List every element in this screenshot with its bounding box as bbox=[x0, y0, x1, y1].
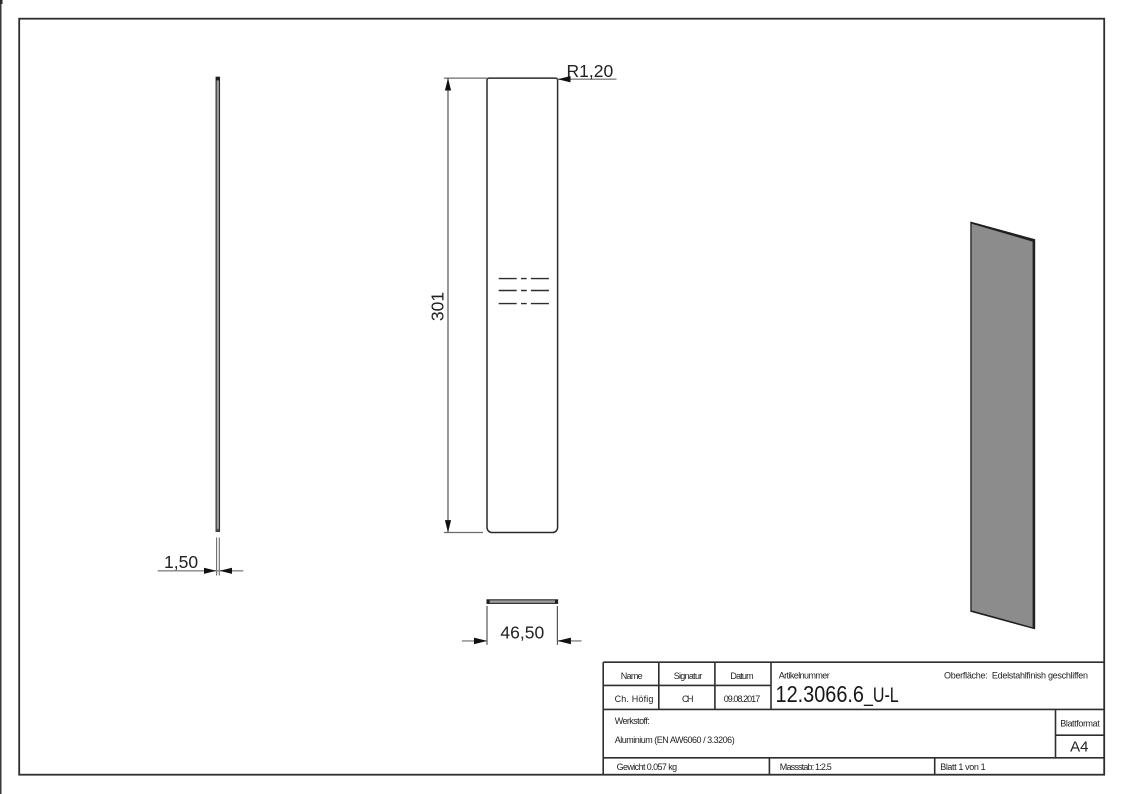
svg-text:Aluminium (EN AW6060 / 3.3206): Aluminium (EN AW6060 / 3.3206) bbox=[615, 735, 735, 745]
svg-text:Ch. Höfig: Ch. Höfig bbox=[615, 694, 654, 704]
svg-text:A4: A4 bbox=[1070, 738, 1088, 755]
svg-text:Signatur: Signatur bbox=[674, 671, 703, 681]
svg-text:09.08.2017: 09.08.2017 bbox=[724, 694, 761, 704]
svg-text:301: 301 bbox=[428, 292, 448, 321]
svg-text:Blattformat: Blattformat bbox=[1060, 719, 1100, 729]
svg-text:Blatt 1 von 1: Blatt 1 von 1 bbox=[940, 762, 985, 772]
svg-text:Massstab: 1:2.5: Massstab: 1:2.5 bbox=[780, 762, 832, 772]
svg-text:12.3066.6_U-L: 12.3066.6_U-L bbox=[776, 681, 899, 707]
svg-text:Name: Name bbox=[621, 671, 643, 681]
svg-text:R1,20: R1,20 bbox=[567, 61, 614, 81]
svg-text:CH: CH bbox=[682, 694, 694, 704]
svg-text:Werkstoff:: Werkstoff: bbox=[615, 716, 650, 726]
svg-text:46,50: 46,50 bbox=[500, 623, 544, 643]
svg-text:Oberfläche: Edelstahlfinish g: Oberfläche: Edelstahlfinish geschliffen bbox=[944, 671, 1088, 681]
svg-text:Artikelnummer: Artikelnummer bbox=[779, 671, 830, 681]
svg-text:Datum: Datum bbox=[730, 671, 753, 681]
svg-text:Gewicht 0.057 kg: Gewicht 0.057 kg bbox=[617, 762, 678, 772]
svg-text:1,50: 1,50 bbox=[164, 552, 198, 572]
